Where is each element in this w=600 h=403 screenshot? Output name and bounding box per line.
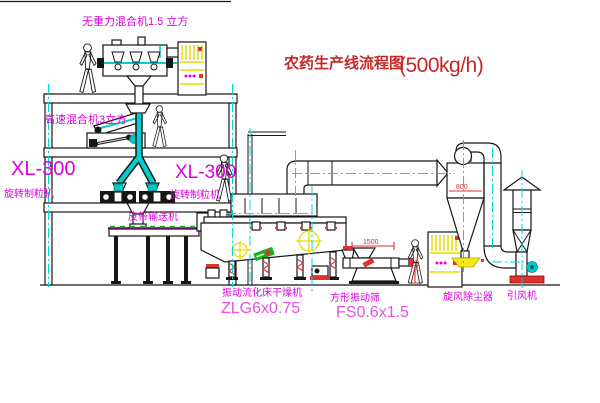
dim-cyclone: 800	[456, 184, 468, 191]
label-granulator-model-left: XL-300	[11, 158, 76, 180]
label-belt-conveyor: 皮带输送机	[128, 210, 178, 223]
label-fan: 引风机	[507, 289, 537, 302]
sieve-discharge	[399, 259, 409, 266]
page-title-capacity: (500kg/h)	[399, 54, 483, 77]
sieve-feed-hopper	[353, 248, 375, 258]
label-dryer-model: ZLG6x0.75	[221, 300, 300, 317]
dryer-motor	[312, 266, 328, 276]
sieve-base	[352, 268, 396, 281]
label-granulator-model-right: XL-300	[175, 162, 236, 183]
fan-suction-duct	[484, 163, 516, 268]
label-high-speed-mixer: 高速混合机3立方	[44, 112, 127, 126]
dryer-top-rail	[204, 217, 346, 223]
label-gravity-free-mixer: 无重力混合机1.5 立方	[82, 14, 188, 28]
dryer-exhaust-hood	[231, 194, 317, 216]
label-granulator-name-left: 旋转制粒机	[4, 187, 54, 200]
dryer-exhaust-duct	[287, 160, 448, 194]
person-second-floor	[153, 106, 167, 147]
label-dryer-name: 振动流化床干燥机	[222, 286, 302, 299]
control-cabinet-top	[178, 42, 206, 95]
diagram-canvas: 农药生产线流程图 (500kg/h) 无重力混合机1.5 立方 高速混合机3立方…	[0, 0, 600, 403]
cyclone-cylinder	[447, 163, 484, 198]
label-sieve-model: FS0.6x1.5	[336, 304, 409, 321]
page-title: 农药生产线流程图	[283, 54, 404, 72]
label-sieve-name: 方形振动筛	[330, 291, 380, 304]
label-granulator-name-right: 旋转制粒机	[170, 188, 220, 201]
mixer-discharge-pipe	[135, 86, 143, 104]
dim-sieve-height: 740	[414, 260, 421, 272]
cad-flow-diagram: 农药生产线流程图 (500kg/h) 无重力混合机1.5 立方 高速混合机3立方…	[0, 0, 600, 403]
granulator-left	[100, 184, 136, 203]
dryer-feed-support	[206, 268, 219, 278]
square-vibrating-sieve	[343, 242, 419, 284]
dryer-body	[201, 223, 346, 262]
mixer-discharge-cone	[127, 76, 151, 86]
label-cyclone: 旋风除尘器	[443, 290, 493, 303]
belt-conveyor	[108, 227, 199, 285]
dim-sieve-length: 1500	[363, 239, 379, 246]
person-top-floor	[80, 44, 96, 92]
mixer2-hopper	[126, 104, 150, 113]
